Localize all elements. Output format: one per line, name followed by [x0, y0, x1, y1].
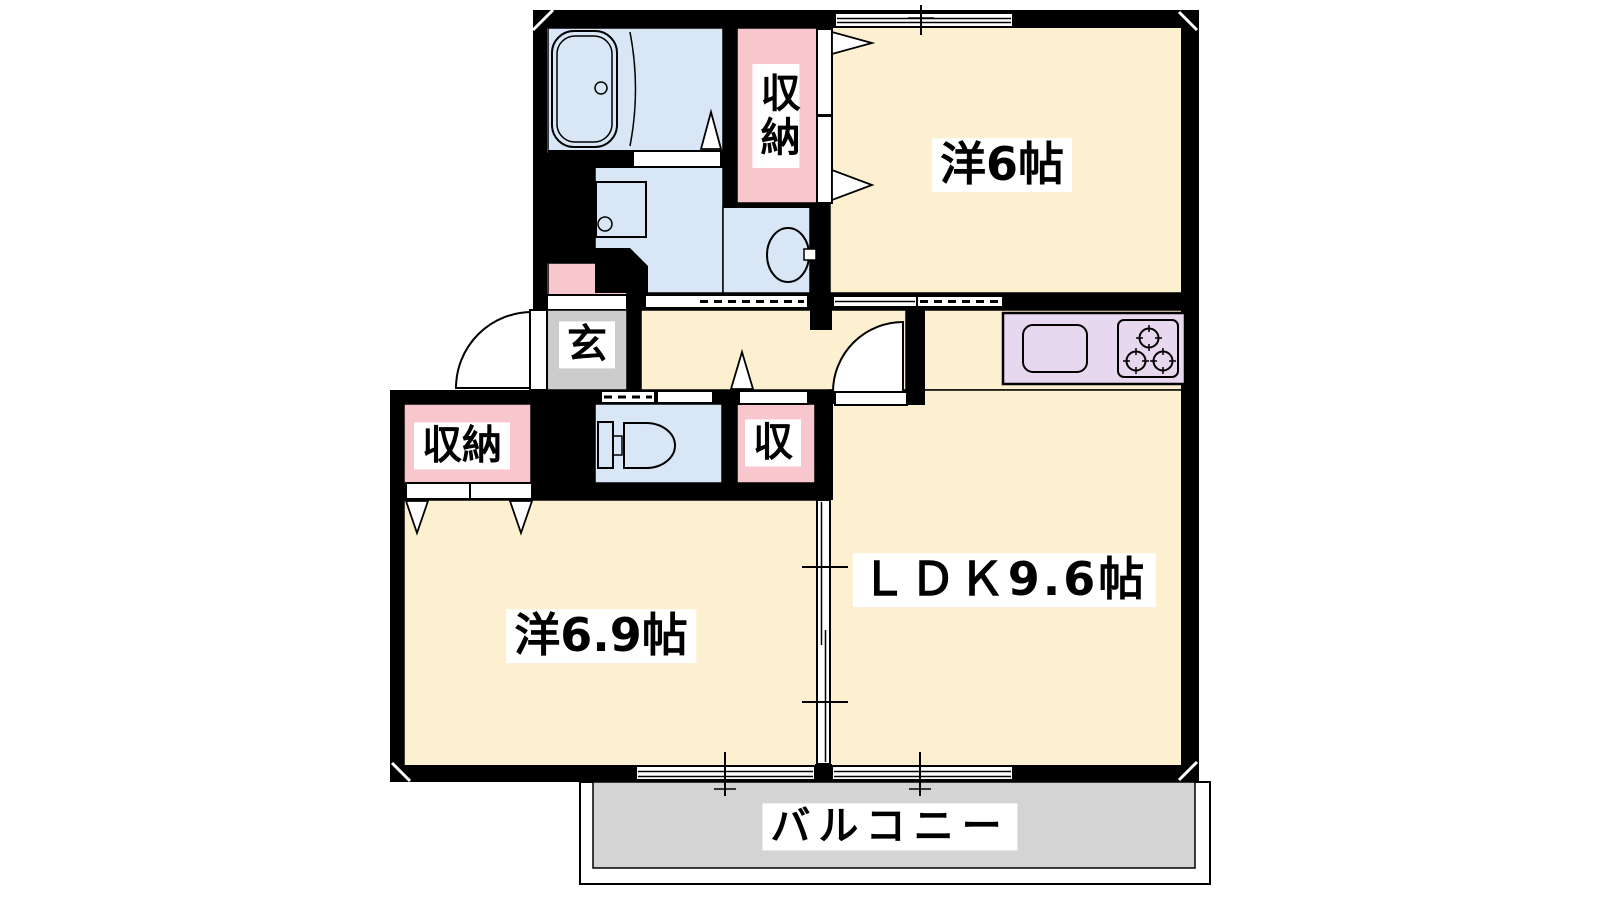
wall-entrance-right [627, 300, 641, 404]
floor-plan-canvas: 洋6帖 ＬＤＫ9.6帖 洋6.9帖 バルコニー 玄 収納 収納 収 [0, 0, 1600, 900]
entrance-step [547, 295, 627, 310]
wall-stub-hall [810, 293, 832, 330]
closet-left-label: 収納 [414, 422, 510, 469]
room-label-ldk: ＬＤＫ9.6帖 [853, 553, 1156, 607]
wall-balcony-post [815, 764, 832, 782]
sliding-door-hall-west6 [833, 296, 1003, 307]
toilet-room-floor [595, 404, 722, 483]
balcony-label: バルコニー [762, 803, 1017, 850]
wall-under-bath [533, 153, 595, 263]
sliding-door-washroom [645, 295, 808, 308]
wall-closet-small-right [815, 390, 833, 500]
wall-toilet-closet-div [722, 404, 737, 483]
door-leaf [835, 392, 907, 405]
wall-ldk-door-side [906, 308, 925, 405]
closet-top-label: 収納 [752, 64, 799, 168]
wall-left-lower [390, 390, 404, 782]
closet-small-label: 収 [745, 419, 801, 466]
sliding-door-toilet [601, 391, 713, 403]
entrance-label: 玄 [559, 321, 615, 368]
entrance-swing-door [456, 310, 547, 390]
room-label-west6: 洋6帖 [932, 138, 1072, 192]
wall-bath-closet-div [723, 28, 737, 207]
door-arc [456, 312, 532, 388]
kitchen-counter [1003, 313, 1185, 384]
room-label-west69: 洋6.9帖 [506, 609, 696, 663]
wall-right [1181, 10, 1199, 782]
door-leaf [530, 310, 547, 390]
floors [404, 27, 1210, 884]
